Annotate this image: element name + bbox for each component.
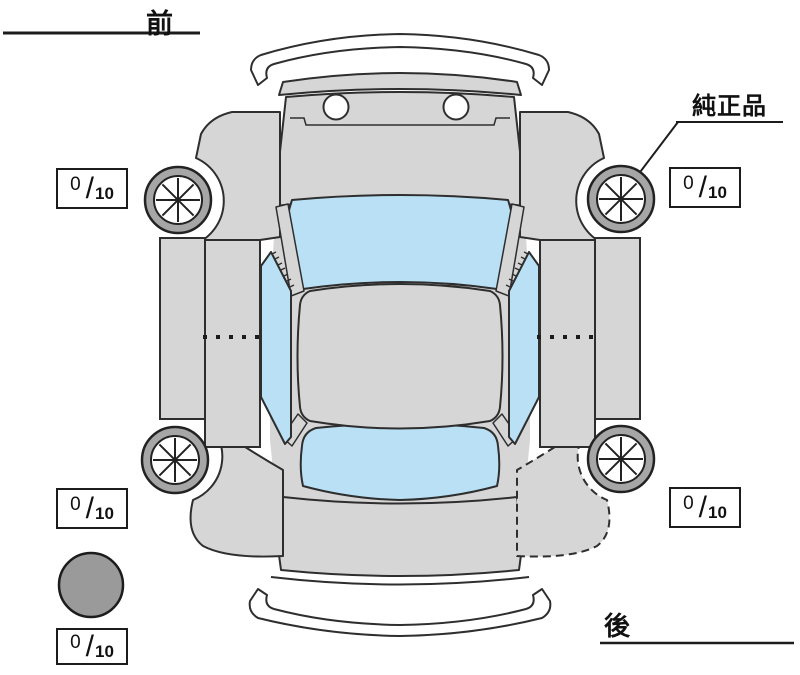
rear-window-glass xyxy=(301,424,500,501)
tread-depth-box-spare: 0/10 xyxy=(56,628,128,665)
left-door-outer-panel xyxy=(160,238,205,419)
tread-depth-box-rear-right: 0/10 xyxy=(669,487,741,528)
front-label: 前 xyxy=(146,2,175,41)
left-door-inner-panel xyxy=(205,240,260,447)
windshield-glass xyxy=(286,195,514,289)
rear-label: 後 xyxy=(604,606,632,643)
rear-bumper xyxy=(250,589,551,636)
rear-right-tire xyxy=(588,426,654,492)
trunk-lip-line xyxy=(271,577,529,585)
rear-left-tire xyxy=(142,427,208,493)
tread-depth-box-front-right: 0/10 xyxy=(669,167,741,208)
roof-panel xyxy=(298,284,503,429)
tread-value: 0 xyxy=(70,175,81,194)
front-left-tire xyxy=(145,167,211,233)
right-door-outer-panel xyxy=(595,238,640,419)
hood-washer-right xyxy=(444,95,469,120)
fraction-slash: / xyxy=(86,494,94,524)
tread-depth-box-front-left: 0/10 xyxy=(56,168,128,209)
hood-panel xyxy=(274,92,526,206)
tread-max: 10 xyxy=(95,643,114,660)
left-side-windows-glass xyxy=(261,252,291,444)
hood-washer-left xyxy=(324,95,349,120)
tread-max: 10 xyxy=(95,185,114,202)
spare-tire-circle xyxy=(59,553,123,617)
tread-max: 10 xyxy=(708,184,727,201)
front-right-tire xyxy=(588,166,654,232)
vehicle-inspection-diagram: 前 後 純正品 0/10 0/10 0/10 0/10 0/10 xyxy=(0,0,800,675)
tread-max: 10 xyxy=(708,504,727,521)
tread-depth-box-rear-left: 0/10 xyxy=(56,488,128,529)
tread-value: 0 xyxy=(683,174,694,193)
tread-max: 10 xyxy=(95,505,114,522)
fraction-slash: / xyxy=(86,174,94,204)
front-left-fender xyxy=(193,112,280,248)
tread-value: 0 xyxy=(70,495,81,514)
fraction-slash: / xyxy=(86,632,94,662)
genuine-part-label: 純正品 xyxy=(692,86,767,121)
fraction-slash: / xyxy=(699,173,707,203)
tread-value: 0 xyxy=(70,633,81,652)
right-door-inner-panel xyxy=(540,240,595,447)
tread-value: 0 xyxy=(683,494,694,513)
car-top-view-drawing xyxy=(0,0,800,675)
fraction-slash: / xyxy=(699,493,707,523)
trunk-panel xyxy=(277,497,523,576)
right-side-windows-glass xyxy=(509,252,539,444)
